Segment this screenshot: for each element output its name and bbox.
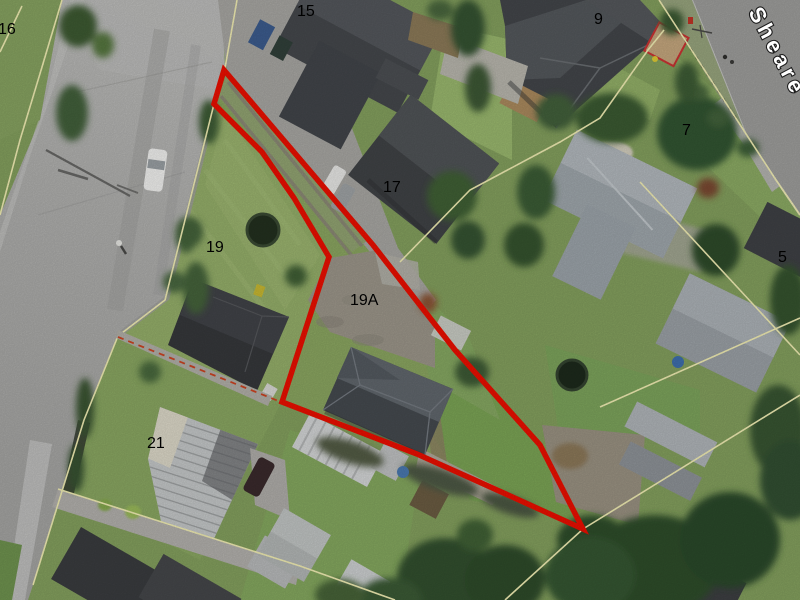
svg-text:16: 16: [0, 21, 16, 38]
svg-text:7: 7: [682, 122, 691, 139]
svg-text:9: 9: [594, 11, 603, 28]
svg-text:5: 5: [778, 249, 787, 266]
svg-text:19: 19: [206, 239, 224, 256]
svg-text:15: 15: [297, 3, 315, 20]
svg-text:21: 21: [147, 435, 165, 452]
svg-text:17: 17: [383, 179, 401, 196]
svg-text:19A: 19A: [350, 292, 379, 309]
